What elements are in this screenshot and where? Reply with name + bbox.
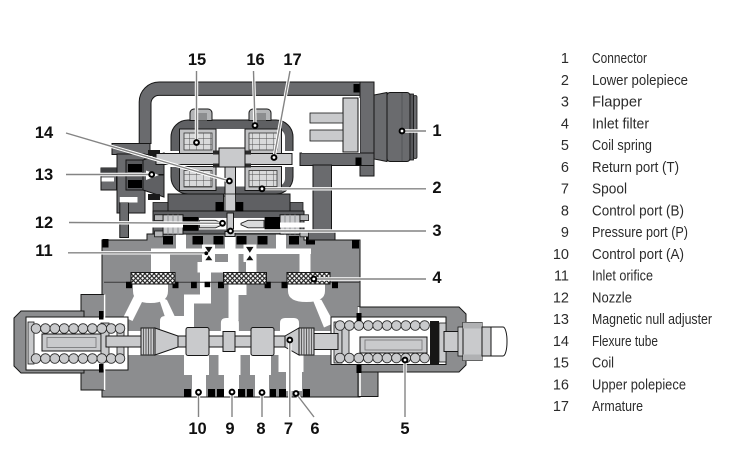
svg-text:Flapper: Flapper [592, 94, 642, 111]
svg-text:Pressure port (P): Pressure port (P) [592, 224, 688, 241]
svg-text:14: 14 [553, 334, 569, 350]
svg-text:Control port (A): Control port (A) [592, 246, 684, 263]
svg-text:16: 16 [246, 51, 264, 69]
svg-text:9: 9 [225, 420, 234, 438]
svg-text:Spool: Spool [592, 181, 627, 198]
svg-text:6: 6 [561, 160, 569, 176]
svg-text:14: 14 [35, 124, 54, 142]
svg-text:10: 10 [188, 420, 206, 438]
svg-text:8: 8 [561, 203, 569, 219]
svg-text:12: 12 [553, 290, 569, 306]
svg-text:Magnetic null adjuster: Magnetic null adjuster [592, 311, 712, 328]
svg-text:Lower polepiece: Lower polepiece [592, 72, 688, 89]
svg-text:Control port (B): Control port (B) [592, 202, 684, 219]
svg-text:10: 10 [553, 247, 569, 263]
svg-text:7: 7 [561, 182, 569, 198]
svg-text:15: 15 [553, 356, 569, 372]
svg-text:17: 17 [553, 399, 569, 415]
svg-text:1: 1 [432, 122, 441, 140]
svg-text:16: 16 [553, 377, 569, 393]
svg-text:1: 1 [561, 51, 569, 67]
svg-text:Armature: Armature [592, 398, 643, 415]
svg-text:4: 4 [561, 116, 569, 132]
svg-text:Return port (T): Return port (T) [592, 159, 679, 176]
svg-text:4: 4 [432, 269, 442, 287]
svg-text:12: 12 [35, 214, 53, 232]
svg-text:7: 7 [284, 420, 293, 438]
svg-text:9: 9 [561, 225, 569, 241]
svg-text:Nozzle: Nozzle [592, 289, 632, 306]
svg-text:2: 2 [432, 179, 441, 197]
svg-text:Flexure tube: Flexure tube [592, 333, 658, 350]
svg-text:13: 13 [35, 166, 53, 184]
svg-text:11: 11 [554, 269, 569, 285]
svg-text:2: 2 [561, 73, 569, 89]
svg-text:Coil spring: Coil spring [592, 137, 652, 154]
svg-text:17: 17 [283, 51, 301, 69]
svg-text:6: 6 [310, 420, 319, 438]
svg-text:Coil: Coil [592, 355, 614, 372]
svg-text:Connector: Connector [592, 50, 647, 67]
svg-text:11: 11 [35, 242, 52, 260]
svg-text:5: 5 [400, 420, 409, 438]
svg-text:13: 13 [553, 312, 569, 328]
svg-text:8: 8 [256, 420, 265, 438]
svg-text:Inlet filter: Inlet filter [592, 115, 649, 132]
svg-text:5: 5 [561, 138, 569, 154]
svg-text:Inlet orifice: Inlet orifice [592, 268, 653, 285]
svg-text:3: 3 [432, 222, 441, 240]
svg-text:Upper polepiece: Upper polepiece [592, 376, 686, 393]
svg-text:3: 3 [561, 95, 569, 111]
svg-text:15: 15 [188, 51, 206, 69]
